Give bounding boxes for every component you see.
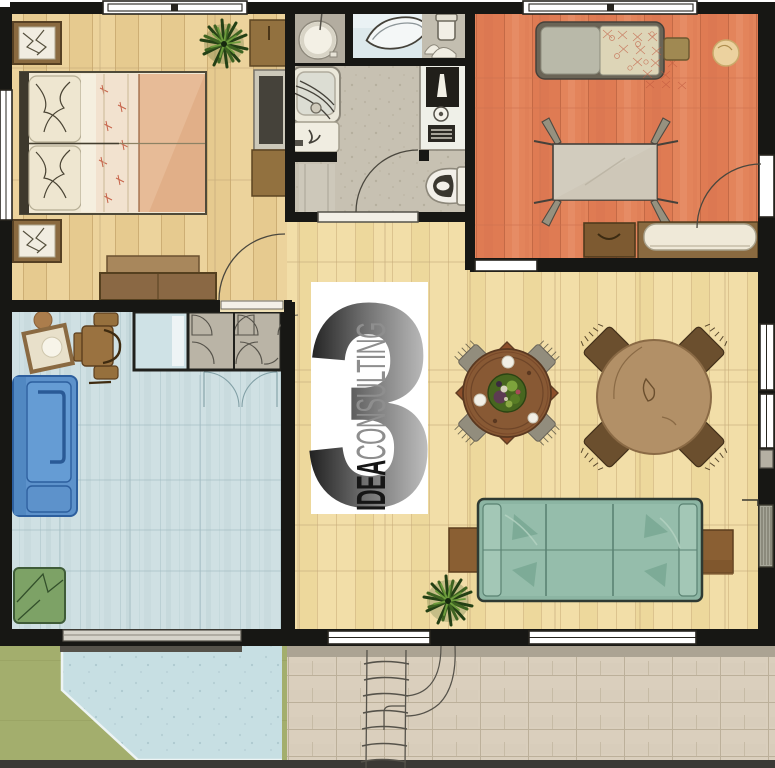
svg-text:IDEACONSULTING: IDEACONSULTING xyxy=(348,322,394,511)
